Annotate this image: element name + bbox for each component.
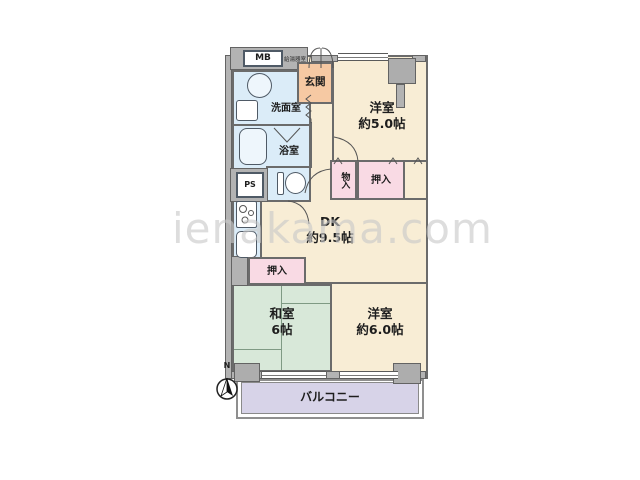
room-entrance: 玄関 <box>297 62 333 104</box>
western6-label: 洋室 約6.0帖 <box>342 306 418 339</box>
western6-size: 約6.0帖 <box>342 322 418 338</box>
pipe-space-label: PS <box>244 180 256 190</box>
wash-basin-icon <box>236 100 258 121</box>
balcony-label: バルコニー <box>300 390 360 406</box>
washing-machine-icon <box>247 73 272 98</box>
floorplan-canvas: MB 給湯器室 洗面室 浴室 PS 玄関 物入 押入 押入 <box>0 0 640 480</box>
bathroom-label: 浴室 <box>272 145 306 158</box>
wall-block-left-closet <box>231 256 248 286</box>
window-top <box>338 53 388 61</box>
closet-storage: 物入 <box>330 160 357 200</box>
toilet-bowl-icon <box>285 172 306 194</box>
toilet-tank-icon <box>277 172 284 195</box>
closet-left-label: 押入 <box>267 265 287 278</box>
japanese-name: 和室 <box>252 306 312 322</box>
western5-name: 洋室 <box>340 100 424 116</box>
compass-north-label: N <box>220 361 234 371</box>
meter-box-label: MB <box>255 53 271 65</box>
japanese-label: 和室 6帖 <box>252 306 312 339</box>
closet-upper: 押入 <box>357 160 405 200</box>
wall-segment-top-center <box>311 55 338 62</box>
meter-box: MB <box>243 50 283 67</box>
closet-left: 押入 <box>248 257 306 285</box>
pillar-bottom-left <box>234 363 260 382</box>
tatami-line-left <box>234 349 281 350</box>
closet-upper-label: 押入 <box>371 174 391 187</box>
tatami-line-right <box>282 303 330 304</box>
window-japanese-room <box>262 371 326 379</box>
japanese-size: 6帖 <box>252 322 312 338</box>
wall-segment-bottom-center <box>326 371 340 379</box>
room-balcony: バルコニー <box>241 382 419 414</box>
western5-size: 約5.0帖 <box>340 116 424 132</box>
wall-line-closet-row-bottom <box>404 198 426 200</box>
watermark: ienakama.com <box>172 204 493 253</box>
window-western6-room <box>340 371 398 379</box>
pipe-space: PS <box>236 172 264 198</box>
western5-label: 洋室 約5.0帖 <box>340 100 424 133</box>
entrance-label: 玄関 <box>305 76 326 90</box>
bathtub-icon <box>239 128 267 165</box>
western6-name: 洋室 <box>342 306 418 322</box>
wall-line-hall-left-lower <box>310 122 312 168</box>
storage-label: 物入 <box>338 172 350 188</box>
pillar-top-right <box>388 58 416 84</box>
